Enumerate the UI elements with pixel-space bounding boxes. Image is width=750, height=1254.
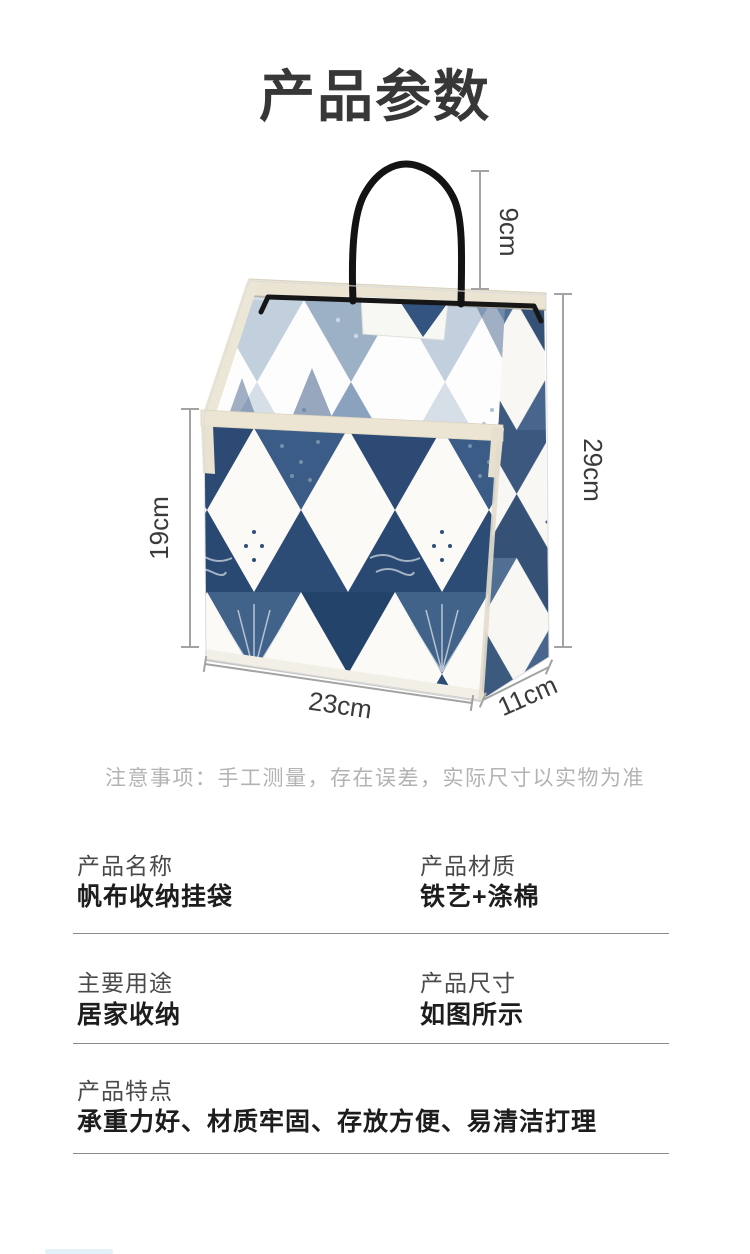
spec-value-product-features: 承重力好、材质牢固、存放方便、易清洁打理 bbox=[77, 1102, 597, 1138]
dim-line-handle bbox=[471, 171, 489, 289]
spec-label-main-use: 主要用途 bbox=[77, 964, 173, 998]
measurement-note: 注意事项：手工测量，存在误差，实际尺寸以实物为准 bbox=[0, 762, 750, 792]
spec-value-product-size: 如图所示 bbox=[420, 995, 524, 1031]
dim-label-height: 29cm bbox=[578, 438, 608, 502]
product-figure: 9cm 29cm 19cm 23cm 11cm bbox=[0, 140, 750, 740]
dim-line-height bbox=[554, 294, 572, 647]
spec-value-material: 铁艺+涤棉 bbox=[420, 877, 540, 913]
product-parameters-page: 产品参数 bbox=[0, 0, 750, 1254]
divider bbox=[73, 1043, 669, 1044]
spec-label-product-name: 产品名称 bbox=[77, 847, 173, 881]
divider bbox=[73, 933, 669, 934]
dim-line-pocket bbox=[181, 409, 199, 647]
spec-label-product-features: 产品特点 bbox=[77, 1072, 173, 1106]
page-title: 产品参数 bbox=[0, 52, 750, 133]
dim-label-pocket: 19cm bbox=[144, 496, 174, 560]
dim-label-handle: 9cm bbox=[494, 207, 524, 256]
handle-wire-icon bbox=[352, 164, 461, 304]
spec-value-main-use: 居家收纳 bbox=[77, 995, 181, 1031]
spec-value-product-name: 帆布收纳挂袋 bbox=[77, 877, 233, 913]
spec-label-product-size: 产品尺寸 bbox=[420, 964, 516, 998]
spec-label-material: 产品材质 bbox=[420, 847, 516, 881]
dim-label-width: 23cm bbox=[307, 686, 374, 725]
next-section-edge bbox=[45, 1249, 113, 1254]
divider bbox=[73, 1153, 669, 1154]
